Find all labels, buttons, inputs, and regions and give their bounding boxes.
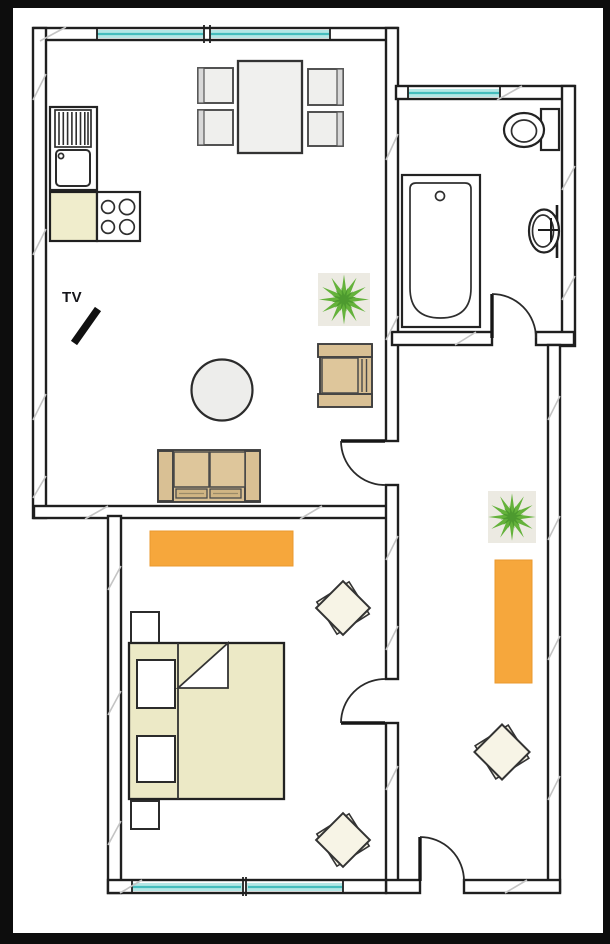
burner xyxy=(102,201,115,214)
sofa-armrest xyxy=(158,451,173,501)
burner xyxy=(102,221,115,234)
wall-hall-right xyxy=(548,345,560,892)
chair-backrest xyxy=(337,69,343,105)
wall-hall-bottom-right xyxy=(464,880,560,893)
wall-bath-bottom-left xyxy=(392,332,492,345)
bathtub xyxy=(402,175,480,327)
toilet xyxy=(504,109,559,150)
nightstand xyxy=(131,612,159,643)
double-bed xyxy=(129,612,284,829)
stove xyxy=(97,192,140,241)
sofa xyxy=(158,450,260,502)
armchair-seat xyxy=(322,358,358,393)
floor-plan-svg: TV xyxy=(0,0,610,944)
dining-table xyxy=(238,61,302,153)
rug-bedroom xyxy=(150,531,293,566)
wall-bath-right xyxy=(562,86,575,346)
counter xyxy=(50,192,97,241)
round-table xyxy=(192,360,253,421)
nightstand xyxy=(131,801,159,829)
kitchen-sink-unit xyxy=(50,107,97,190)
wall-living-left xyxy=(33,28,46,518)
chair-backrest xyxy=(337,112,343,146)
bathtub-drain xyxy=(436,192,445,201)
plant-hall xyxy=(488,491,536,543)
wall-hall-bottom-left xyxy=(386,880,420,893)
bathtub-inner xyxy=(410,183,471,318)
sofa-armrest xyxy=(245,451,260,501)
wall-center-middle xyxy=(386,485,398,679)
plant-living xyxy=(318,273,370,326)
armchair-armrest xyxy=(318,394,372,407)
chair-backrest xyxy=(198,110,204,145)
tv-label: TV xyxy=(62,289,82,306)
sink-tap xyxy=(58,153,63,158)
sofa-seat-cushion xyxy=(174,452,209,487)
chair-backrest xyxy=(198,68,204,103)
wall-bath-bottom-right xyxy=(536,332,574,345)
armchair-armrest xyxy=(318,344,372,357)
burner xyxy=(119,199,134,214)
burner xyxy=(120,220,135,235)
pillow xyxy=(137,736,175,782)
toilet-bowl-inner xyxy=(512,120,537,142)
armchair xyxy=(318,344,372,407)
kitchen-counter-stove xyxy=(50,192,140,241)
sofa-seat-cushion xyxy=(210,452,245,487)
pillow xyxy=(137,660,175,708)
rug-hallway xyxy=(495,560,532,683)
wall-center-lower xyxy=(386,723,398,892)
floor-plan-page: TV xyxy=(0,0,610,944)
